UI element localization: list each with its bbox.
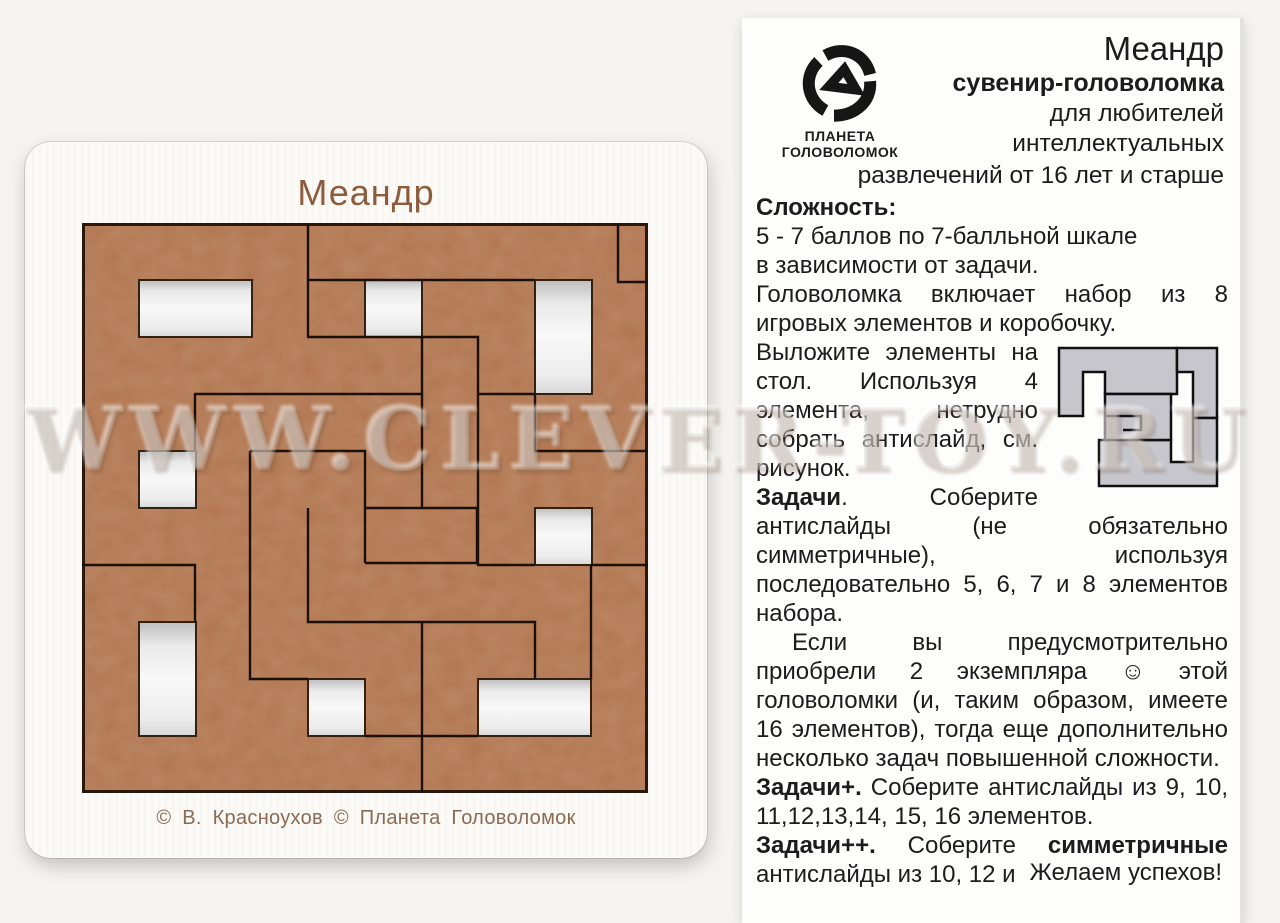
difficulty-line: в зависимости от задачи.	[756, 251, 1228, 280]
tasks-heading: Задачи	[756, 484, 841, 511]
bonus-note-paragraph: Если вы предусмотрительно приобрели 2 эк…	[756, 628, 1228, 773]
farewell-line: Желаем успехов!	[1024, 859, 1222, 887]
tasks-plus-paragraph: Задачи+. Соберите антислайды из 9, 10, 1…	[756, 773, 1228, 831]
difficulty-line: 5 - 7 баллов по 7-балльной шкале	[756, 222, 1228, 251]
tasks-plus-plus-text: Соберите	[876, 832, 1048, 859]
includes-paragraph: Головоломка включает набор из 8 игровых …	[756, 280, 1228, 338]
board-title: Меандр	[25, 172, 707, 214]
board-copyright: © В. Красноухов © Планета Головоломок	[25, 807, 707, 830]
tasks-plus-heading: Задачи+.	[756, 774, 862, 801]
puzzle-board: Меандр	[25, 142, 707, 858]
knot-logo-icon	[792, 40, 888, 126]
leaflet-title-block: Меандр сувенир-головоломка для любителей…	[924, 30, 1228, 160]
instruction-leaflet: ПЛАНЕТА ГОЛОВОЛОМОК Меандр сувенир-голов…	[742, 18, 1244, 923]
symmetric-bold: симметричные	[1048, 832, 1228, 859]
leaflet-header: ПЛАНЕТА ГОЛОВОЛОМОК Меандр сувенир-голов…	[756, 30, 1228, 160]
brand-name-line2: ГОЛОВОЛОМОК	[756, 144, 924, 160]
leaflet-title: Меандр	[924, 30, 1224, 68]
leaflet-subtitle: сувенир-головоломка	[924, 68, 1224, 99]
difficulty-heading: Сложность:	[756, 193, 1228, 222]
tasks-paragraph: Задачи. Соберите антислайды (не обязател…	[756, 483, 1228, 628]
puzzle-tray	[82, 223, 648, 793]
antislide-diagram	[1048, 342, 1228, 492]
brand-block: ПЛАНЕТА ГОЛОВОЛОМОК	[756, 30, 924, 160]
brand-name-line1: ПЛАНЕТА	[756, 128, 924, 144]
leaflet-body: Сложность: 5 - 7 баллов по 7-балльной шк…	[756, 193, 1228, 889]
audience-line: развлечений от 16 лет и старше	[756, 160, 1228, 191]
audience-line: для любителей	[924, 99, 1224, 129]
audience-line: интеллектуальных	[924, 129, 1224, 159]
tasks-plus-plus-heading: Задачи++.	[756, 832, 876, 859]
